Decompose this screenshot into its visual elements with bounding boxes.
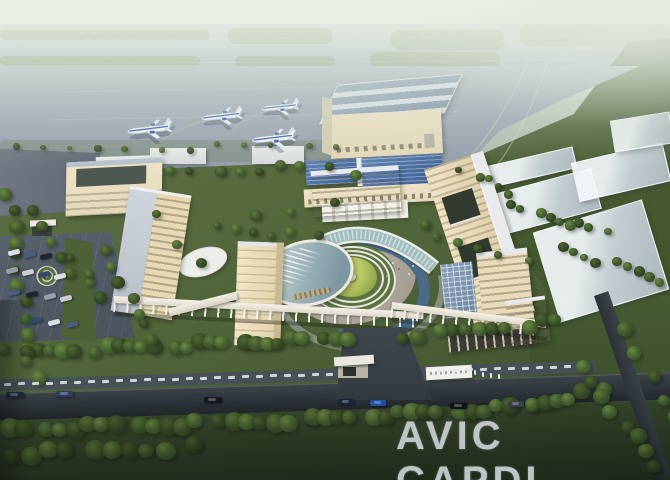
- tree: [185, 167, 193, 175]
- tree: [644, 272, 654, 282]
- tree: [396, 333, 409, 345]
- tree: [67, 146, 72, 151]
- tree: [9, 205, 21, 216]
- tree: [525, 257, 533, 264]
- tree: [186, 413, 203, 429]
- tree: [485, 175, 493, 183]
- tree: [548, 314, 561, 326]
- parked-car: [46, 381, 53, 385]
- tree: [409, 330, 426, 345]
- tree: [106, 262, 117, 272]
- parked-car: [38, 271, 51, 279]
- tree: [593, 389, 610, 404]
- pedestrian: [412, 265, 414, 267]
- parked-car: [228, 376, 235, 380]
- car: [370, 400, 386, 406]
- tree: [139, 319, 149, 328]
- parked-car: [564, 365, 571, 369]
- parked-car: [536, 366, 543, 370]
- parked-car: [270, 374, 277, 378]
- tree: [279, 415, 298, 432]
- tree: [46, 237, 56, 246]
- tree: [20, 356, 32, 367]
- parked-car: [130, 379, 137, 383]
- parked-car: [172, 377, 179, 381]
- parked-car: [312, 373, 319, 377]
- car: [204, 397, 222, 403]
- tree: [111, 276, 125, 289]
- parked-car: [452, 369, 459, 373]
- tree: [121, 442, 139, 458]
- parked-car: [186, 377, 193, 381]
- parked-car: [508, 367, 515, 371]
- tree: [648, 370, 661, 382]
- pedestrian: [392, 262, 394, 264]
- tree: [268, 143, 273, 148]
- tree: [128, 293, 140, 304]
- tree: [250, 210, 262, 221]
- tree: [187, 147, 195, 154]
- tree: [590, 258, 601, 268]
- parked-car: [242, 375, 249, 379]
- tree: [107, 415, 128, 434]
- tree: [267, 232, 275, 240]
- tree: [561, 393, 575, 406]
- tree: [306, 143, 313, 150]
- parked-car: [24, 251, 37, 259]
- tree: [516, 205, 524, 213]
- car: [6, 392, 24, 398]
- bollard: [490, 373, 492, 378]
- parked-car: [54, 273, 67, 281]
- tree: [231, 224, 241, 233]
- tree: [585, 376, 598, 388]
- pedestrian: [408, 273, 410, 275]
- tree: [103, 441, 123, 459]
- tree: [285, 227, 295, 237]
- landscape-layer: [0, 0, 670, 480]
- tree: [249, 228, 258, 236]
- tree: [27, 205, 39, 216]
- tree: [156, 442, 176, 461]
- tree: [121, 146, 128, 152]
- bollard: [482, 372, 484, 377]
- parked-car: [44, 293, 57, 301]
- parked-car: [284, 374, 291, 378]
- car: [450, 403, 467, 409]
- tree: [314, 231, 324, 240]
- parked-car: [550, 365, 557, 369]
- tree: [215, 166, 226, 176]
- tree: [658, 395, 670, 406]
- parked-car: [326, 373, 333, 377]
- parked-car: [144, 378, 151, 382]
- tree: [453, 238, 464, 248]
- tree: [185, 436, 203, 453]
- parked-car: [88, 380, 95, 384]
- parked-car: [60, 381, 67, 385]
- tree: [623, 262, 632, 270]
- aerial-rendering-canvas: AVIC CAPDI: [0, 0, 670, 480]
- tree: [546, 213, 556, 222]
- tree: [294, 161, 304, 171]
- parked-car: [66, 321, 79, 329]
- tree: [0, 188, 12, 200]
- tree: [152, 210, 161, 218]
- tree: [459, 324, 471, 335]
- tree: [286, 208, 295, 216]
- tree: [495, 183, 502, 190]
- tree: [196, 258, 207, 268]
- tree: [333, 144, 339, 150]
- parked-car: [22, 269, 35, 277]
- tree: [555, 218, 564, 226]
- pedestrian: [398, 268, 400, 270]
- tree: [330, 198, 340, 207]
- parked-car: [466, 368, 473, 372]
- pedestrian: [386, 275, 388, 277]
- pedestrian: [404, 258, 406, 260]
- tree: [214, 336, 228, 349]
- tree: [275, 160, 287, 171]
- parked-car: [480, 368, 487, 372]
- parked-car: [494, 367, 501, 371]
- tree: [255, 168, 264, 176]
- tree: [476, 173, 485, 181]
- tree: [498, 322, 511, 334]
- tree: [473, 244, 483, 253]
- tree: [13, 143, 20, 150]
- tree: [612, 257, 622, 266]
- bollard: [498, 374, 500, 379]
- tree: [172, 240, 182, 249]
- parked-car: [18, 382, 25, 386]
- parked-car: [158, 378, 165, 382]
- parked-car: [102, 380, 109, 384]
- parked-car: [26, 291, 39, 299]
- tree: [569, 248, 579, 257]
- tree: [3, 449, 20, 464]
- parked-car: [60, 295, 73, 303]
- tree: [211, 414, 226, 428]
- car: [508, 401, 524, 407]
- parked-car: [200, 376, 207, 380]
- tree: [9, 220, 25, 234]
- tree: [506, 200, 516, 209]
- tree: [40, 145, 46, 151]
- parked-car: [214, 376, 221, 380]
- tree: [350, 170, 362, 181]
- parked-car: [522, 366, 529, 370]
- tree: [84, 270, 94, 279]
- tree: [494, 251, 503, 259]
- tree: [145, 334, 158, 346]
- tree: [66, 254, 75, 262]
- tree: [66, 344, 82, 359]
- tree: [504, 190, 513, 199]
- tree: [64, 268, 76, 279]
- tree: [241, 142, 247, 147]
- watermark-text: AVIC CAPDI: [396, 414, 670, 480]
- tree: [14, 420, 33, 438]
- bollard: [474, 370, 476, 375]
- car: [56, 391, 73, 397]
- parked-car: [116, 379, 123, 383]
- tree: [576, 360, 591, 373]
- tree: [213, 222, 221, 229]
- tree: [56, 442, 73, 458]
- tree: [617, 322, 633, 336]
- tree: [0, 344, 10, 356]
- tree: [294, 331, 309, 345]
- tree: [558, 242, 569, 252]
- parked-car: [74, 380, 81, 384]
- tree: [39, 441, 58, 458]
- tree: [485, 322, 499, 335]
- car: [338, 399, 354, 405]
- tree: [627, 346, 641, 359]
- tree: [325, 162, 334, 170]
- tree: [159, 147, 165, 152]
- tree: [446, 324, 460, 336]
- parked-car: [256, 375, 263, 379]
- tree: [574, 218, 584, 228]
- tree: [52, 423, 67, 437]
- tree: [165, 166, 175, 175]
- parked-car: [30, 317, 43, 325]
- tree: [214, 141, 221, 147]
- tree: [432, 233, 441, 241]
- parked-car: [4, 383, 11, 387]
- tree: [138, 444, 154, 459]
- tree: [94, 291, 107, 303]
- tree: [455, 167, 462, 173]
- tree: [584, 223, 593, 231]
- tree: [100, 245, 112, 256]
- tree: [235, 167, 245, 176]
- tree: [94, 145, 101, 152]
- parked-car: [40, 253, 53, 261]
- tree: [20, 328, 35, 342]
- parked-car: [298, 373, 305, 377]
- tree: [655, 278, 664, 286]
- tree: [604, 228, 612, 235]
- parked-car: [438, 369, 445, 373]
- tree: [340, 332, 356, 347]
- tree: [342, 411, 356, 424]
- tree: [20, 296, 33, 308]
- tree: [36, 221, 47, 231]
- parked-car: [32, 382, 39, 386]
- tree: [420, 220, 431, 230]
- parked-car: [48, 319, 61, 327]
- tree: [580, 254, 588, 262]
